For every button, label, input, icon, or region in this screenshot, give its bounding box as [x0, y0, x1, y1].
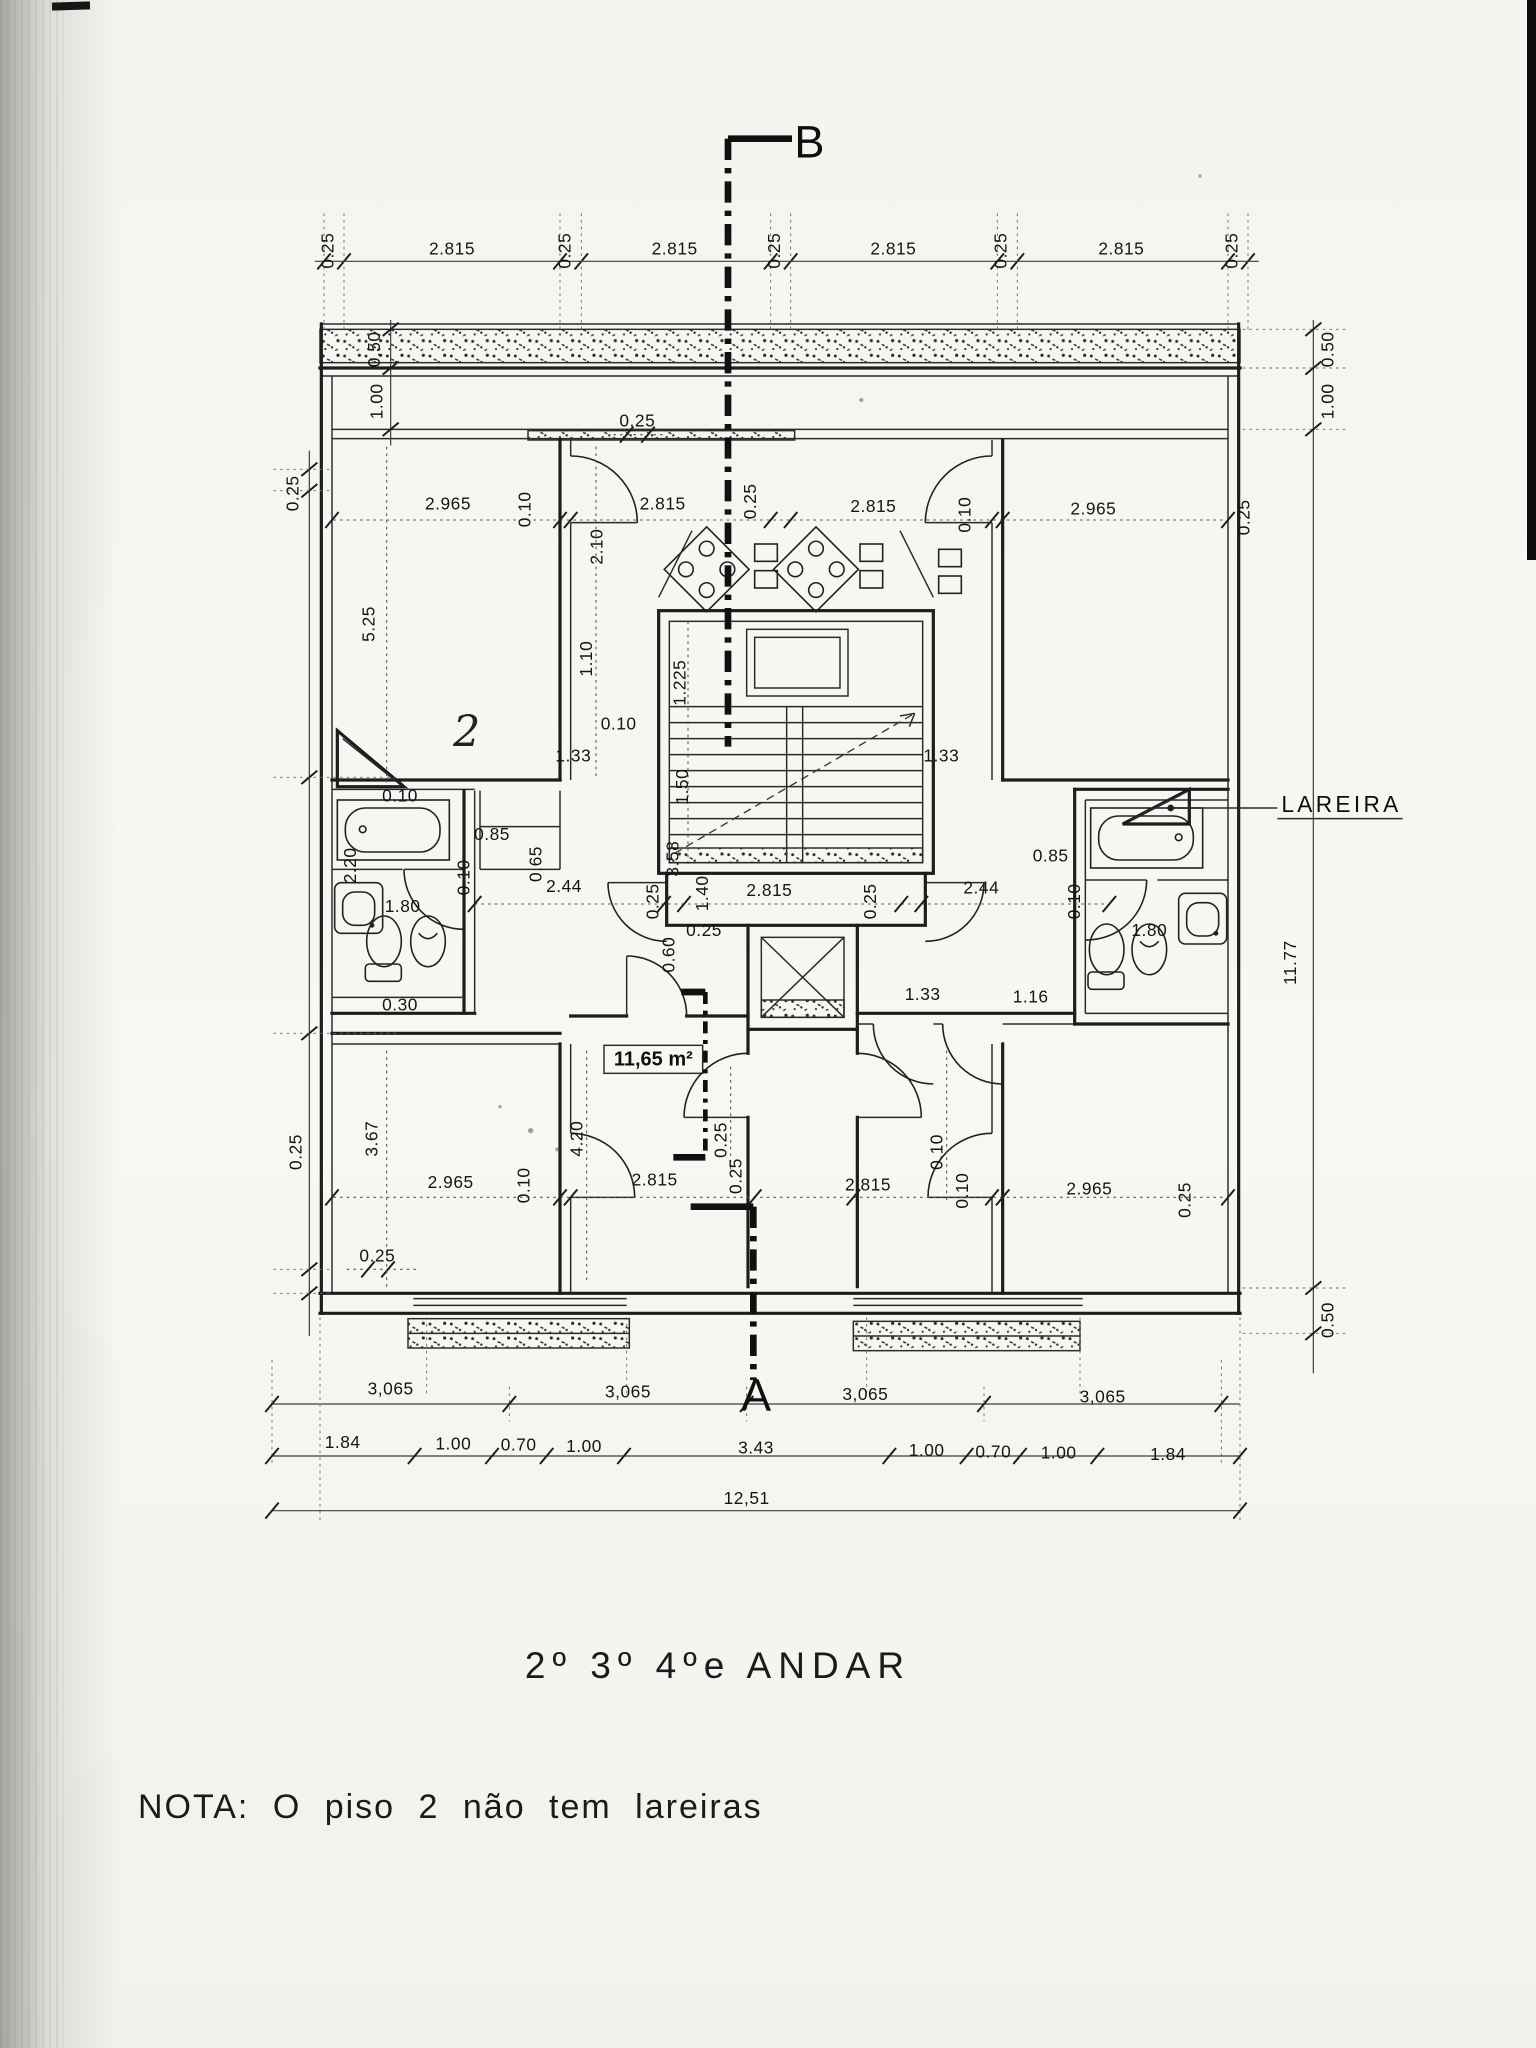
- dimension-label: 1.80: [385, 896, 421, 916]
- floor-plan-drawing: 0.252.8150.252.8150.252.8150.252.8150.25…: [0, 0, 1536, 2048]
- scanned-floor-plan-page: 0.252.8150.252.8150.252.8150.252.8150.25…: [0, 0, 1536, 2048]
- dimension-label: 0.10: [1064, 883, 1084, 919]
- porch-right: [853, 1321, 1080, 1350]
- dimension-label: 1.225: [669, 660, 689, 706]
- dimension-label: 2.815: [640, 493, 686, 513]
- dimension-label: 0.25: [555, 233, 575, 269]
- dimension-label: 1.00: [566, 1436, 602, 1456]
- dimension-label: 3,065: [368, 1379, 414, 1399]
- dimension-label: 1.50: [672, 769, 692, 805]
- dimension-label: 2.815: [429, 239, 475, 259]
- dimension-label: 0.25: [359, 1245, 395, 1265]
- dimension-label: 3,065: [842, 1384, 888, 1404]
- dimension-label: 0.10: [927, 1134, 947, 1170]
- top-exterior-wall: [320, 324, 1240, 376]
- dimension-label: 1.84: [1150, 1444, 1186, 1464]
- dimension-label: 0.10: [955, 497, 975, 533]
- dimension-label: 1.84: [325, 1432, 361, 1452]
- dimension-label: 2.44: [546, 876, 582, 896]
- bottom-exterior-wall: [320, 1293, 1240, 1313]
- dimension-label: 0.10: [382, 785, 418, 805]
- dimension-label: 3.43: [738, 1437, 774, 1457]
- toilet-right-icon: [1088, 924, 1124, 989]
- dimension-label: 0.25: [725, 1158, 745, 1194]
- dimension-label: 11.77: [1280, 940, 1300, 985]
- porch-left: [408, 1319, 629, 1348]
- dimension-label: 12,51: [724, 1488, 770, 1508]
- hall-area-label: 11,65 m²: [614, 1048, 693, 1070]
- dimension-label: 0.50: [364, 331, 384, 367]
- dimension-label: 0.10: [515, 491, 535, 527]
- dimension-label: 1.33: [555, 745, 591, 765]
- dimension-label: 0.60: [659, 937, 679, 973]
- handwritten-mark: 2: [452, 708, 480, 758]
- dimension-label: 0.10: [513, 1167, 533, 1203]
- dimension-label: 1.00: [909, 1440, 945, 1460]
- dimension-label: 0.10: [453, 859, 473, 895]
- dimension-label: 2.815: [1098, 239, 1144, 259]
- dimension-label: 1.16: [1013, 987, 1049, 1007]
- dimension-label: 2.965: [1066, 1179, 1112, 1199]
- sink-right-icon: [1179, 893, 1227, 944]
- sink-left-icon: [335, 883, 383, 934]
- dimension-label: 0.25: [283, 475, 303, 511]
- dimension-label: 2.815: [850, 496, 896, 516]
- dimension-label: 2.815: [632, 1169, 678, 1189]
- dimension-label: 0.25: [860, 883, 880, 919]
- dimension-label: 1.00: [1317, 383, 1337, 419]
- right-exterior-wall: [1228, 324, 1239, 1313]
- dimension-label: 0.25: [619, 411, 655, 431]
- dimension-label: 0.25: [643, 883, 663, 919]
- kitchen-right-stove-icon: [774, 527, 934, 612]
- dimension-label: 0.85: [474, 824, 510, 844]
- dimension-label: 0.70: [975, 1441, 1011, 1461]
- dimension-label: 0.30: [382, 995, 418, 1015]
- dimension-labels: 0.252.8150.252.8150.252.8150.252.8150.25…: [283, 233, 1338, 1508]
- dimension-label: 0.25: [764, 233, 784, 269]
- fireplace-right-icon: [1123, 789, 1190, 824]
- dimension-label: 0.70: [501, 1435, 537, 1455]
- dimension-label: 0.25: [1221, 233, 1241, 269]
- dimension-label: 2.10: [587, 529, 607, 565]
- floor-title: 2º 3º 4ºe ANDAR: [0, 1645, 1486, 1687]
- dimension-label: 2.965: [425, 493, 471, 513]
- scan-specks: [498, 174, 1201, 1151]
- note-text: NOTA: O piso 2 não tem lareiras: [138, 1788, 763, 1827]
- dimension-label: 0.25: [1175, 1182, 1195, 1218]
- dimension-label: 4.20: [567, 1121, 587, 1157]
- dimension-label: 0.25: [285, 1134, 305, 1170]
- dimension-label: 0.25: [991, 233, 1011, 269]
- dimension-label: 2.815: [845, 1175, 891, 1195]
- dimension-label: 0.65: [525, 846, 545, 882]
- section-line-b: [728, 139, 792, 747]
- balcony-gallery-line: [332, 429, 1228, 440]
- dimension-label: 2.815: [870, 239, 916, 259]
- dimension-label: 0.10: [601, 713, 637, 733]
- dimension-label: 0.50: [1317, 331, 1337, 367]
- fireplace-left-icon: [337, 731, 404, 787]
- dimension-label: 1.80: [1131, 920, 1167, 940]
- dimension-label: 1.33: [905, 984, 941, 1004]
- dimension-label: 0.25: [1233, 499, 1253, 535]
- dimension-label: 0.50: [1317, 1302, 1337, 1338]
- dimension-label: 2.815: [652, 239, 698, 259]
- dimension-label: 2.20: [340, 847, 360, 883]
- dimension-label: 1.10: [576, 641, 596, 677]
- bidet-left-icon: [411, 916, 446, 967]
- dimension-label: 2.965: [1070, 499, 1116, 519]
- kitchen-left-stove-icon: [659, 527, 749, 612]
- dimension-label: 1.00: [435, 1433, 471, 1453]
- dimension-label: 0.10: [952, 1173, 972, 1209]
- stairwell: [659, 611, 934, 874]
- dimension-label: 1.40: [692, 875, 712, 911]
- left-exterior-wall: [321, 324, 332, 1313]
- dimension-label: 3,065: [1080, 1387, 1126, 1407]
- dimension-label: 2.44: [963, 877, 999, 897]
- dimension-label: 1.00: [1041, 1443, 1077, 1463]
- dimension-label: 5.25: [359, 606, 379, 642]
- dimension-label: 0.25: [740, 483, 760, 519]
- dimension-label: 3.67: [361, 1121, 381, 1157]
- dimension-label: 1.33: [923, 745, 959, 765]
- section-marker-label: B: [794, 116, 824, 167]
- dimension-label: 3,065: [605, 1381, 651, 1401]
- section-marker-label: A: [741, 1370, 772, 1421]
- dimension-label: 1.00: [367, 383, 387, 419]
- dimension-label: 0.85: [1033, 845, 1069, 865]
- dimension-label: 0.25: [711, 1122, 731, 1158]
- dimension-label: 2.965: [428, 1172, 474, 1192]
- dimension-label: 2.815: [746, 880, 792, 900]
- dimension-label: 0.25: [317, 233, 337, 269]
- plan-annotation-labels: BALAREIRA11,65 m²2: [452, 116, 1402, 1420]
- dimension-label: 3.58: [663, 841, 683, 877]
- bathtub-right-icon: [1091, 808, 1203, 868]
- fireplace-label: LAREIRA: [1281, 791, 1401, 817]
- dimension-label: 0.25: [686, 920, 722, 940]
